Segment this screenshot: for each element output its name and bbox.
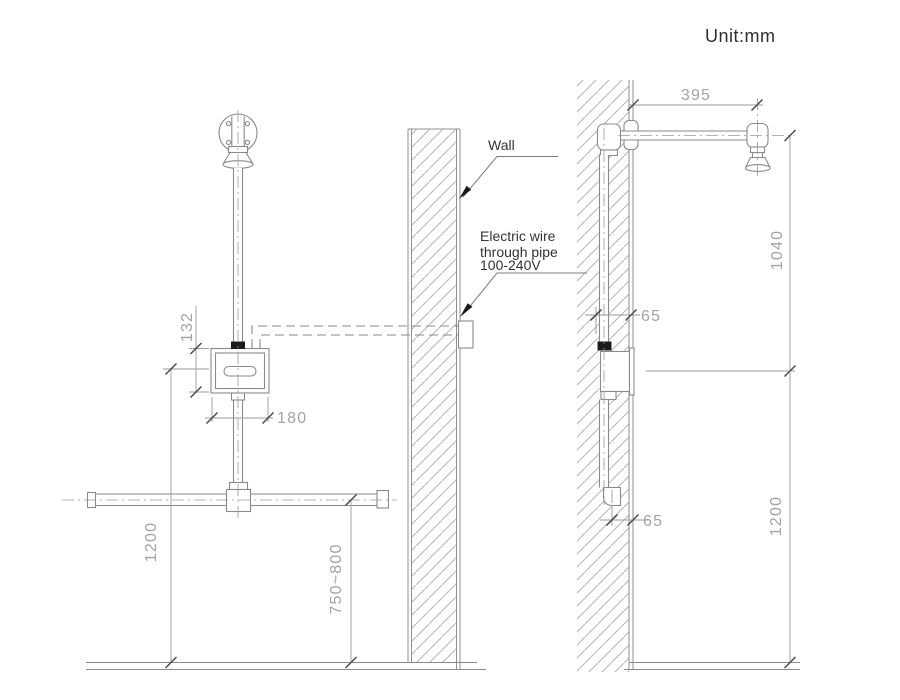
top-elbow-side <box>598 124 621 156</box>
bottom-elbow-side <box>604 488 621 506</box>
installation-diagram: 132 180 1200 750~800 395 65 <box>0 0 900 700</box>
wall-annotation: Wall <box>459 137 558 199</box>
wall-label: Wall <box>488 137 515 153</box>
junction-box <box>459 321 474 348</box>
supply-pipe-front <box>62 483 397 512</box>
shower-arm-side <box>618 121 752 150</box>
unit-label: Unit:mm <box>705 26 776 46</box>
pipe-end-cap-right <box>377 491 389 509</box>
wall-leader-arrow-icon <box>459 186 471 199</box>
dim-sensor-height: 132 <box>179 306 209 398</box>
dim-sensor-height-value: 132 <box>179 312 196 342</box>
dim-supply-to-floor-front-value: 750~800 <box>328 543 345 614</box>
dim-sensor-to-floor-front: 1200 <box>143 364 209 669</box>
dim-offset-bottom-value: 65 <box>643 513 663 530</box>
dim-sensor-width: 180 <box>205 397 307 427</box>
sensor-faceplate-side <box>630 348 635 395</box>
front-view <box>62 110 397 522</box>
dim-supply-to-floor-side: 1200 <box>768 371 795 668</box>
dim-supply-to-floor-front: 750~800 <box>328 495 356 669</box>
dim-offset-top-value: 65 <box>641 308 661 325</box>
inlet-nut-side <box>598 342 612 351</box>
dim-arm-length: 395 <box>628 87 764 111</box>
dim-head-drop-value: 1040 <box>769 230 786 270</box>
electric-wire-annotation: Electric wire through pipe 100-240V <box>460 228 587 317</box>
electric-wire-label-line3: 100-240V <box>480 257 541 273</box>
electric-wire-label-line1: Electric wire <box>480 228 556 244</box>
tee-fitting <box>227 490 251 512</box>
floor-lines <box>86 663 800 670</box>
drawing-canvas: 132 180 1200 750~800 395 65 <box>0 0 900 700</box>
front-wall-section <box>408 129 460 670</box>
dim-sensor-width-value: 180 <box>277 410 307 427</box>
dim-head-drop: 1040 <box>646 130 796 377</box>
dim-supply-to-floor-side-value: 1200 <box>768 496 785 536</box>
sensor-box-front <box>211 342 269 401</box>
dim-sensor-to-floor-front-value: 1200 <box>143 522 160 562</box>
dim-arm-length-value: 395 <box>681 87 711 104</box>
